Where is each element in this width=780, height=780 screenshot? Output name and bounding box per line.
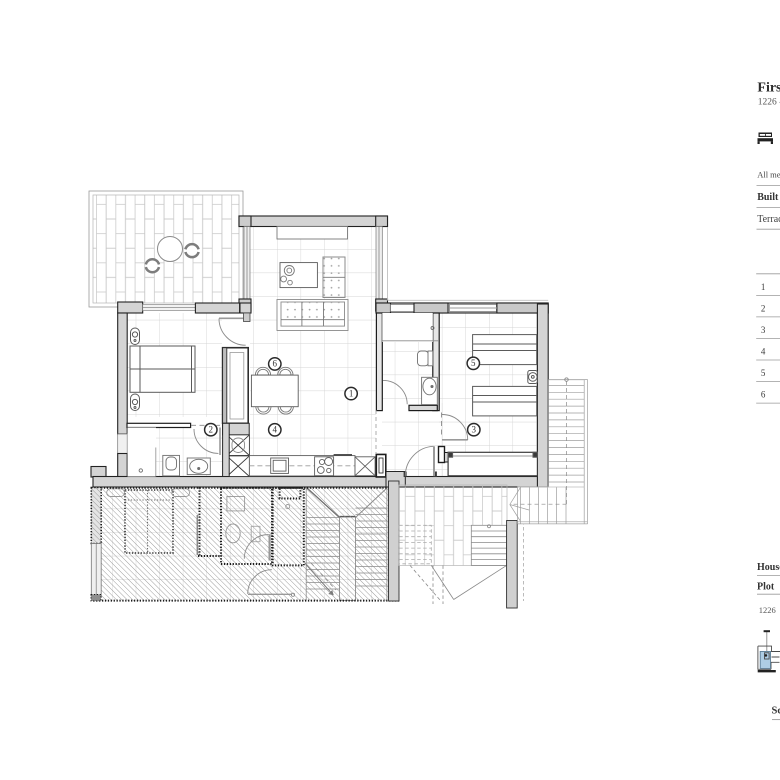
svg-text:2: 2	[761, 304, 766, 314]
svg-text:Housetyp: Housetyp	[757, 562, 780, 573]
svg-text:1: 1	[761, 282, 766, 292]
svg-text:Terrace: Terrace	[757, 214, 780, 225]
svg-text:1226: 1226	[759, 605, 776, 615]
svg-text:4: 4	[273, 425, 278, 435]
svg-text:6: 6	[761, 390, 766, 400]
svg-text:3: 3	[472, 425, 477, 435]
svg-text:2: 2	[209, 425, 214, 435]
svg-text:1226 - Vill: 1226 - Vill	[758, 98, 780, 108]
svg-text:Sc: Sc	[772, 706, 780, 717]
svg-text:1: 1	[349, 388, 354, 398]
svg-text:5: 5	[761, 368, 766, 378]
svg-text:All measur: All measur	[757, 170, 780, 180]
svg-text:6: 6	[273, 359, 278, 369]
svg-text:Plot: Plot	[757, 582, 775, 593]
svg-text:First Floor: First Floor	[757, 81, 780, 96]
svg-text:Built: Built	[757, 192, 779, 203]
svg-text:4: 4	[761, 347, 766, 357]
svg-text:5: 5	[471, 358, 476, 368]
svg-text:3: 3	[761, 325, 766, 335]
